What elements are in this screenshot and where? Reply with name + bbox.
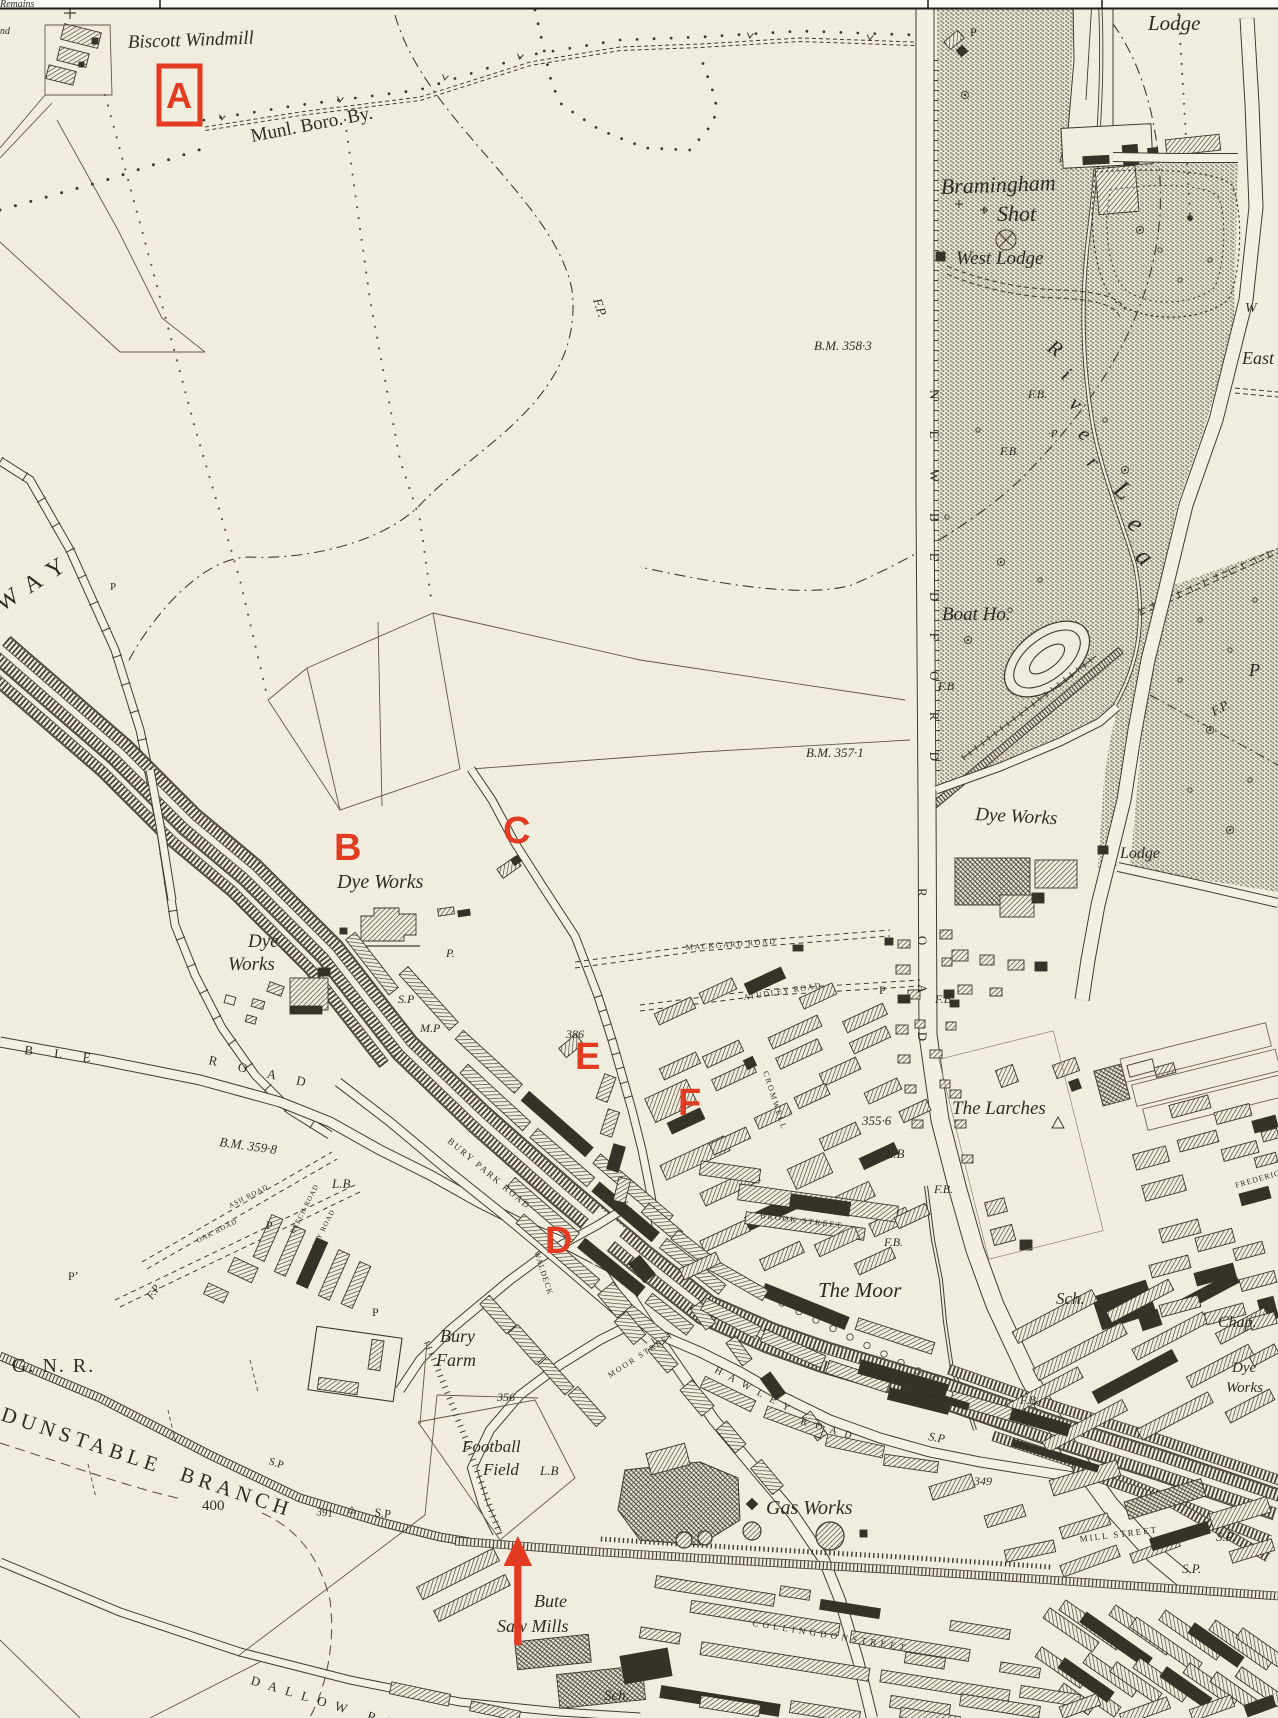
svg-text:A: A [166, 75, 192, 116]
svg-text:Field: Field [482, 1460, 519, 1479]
svg-text:Shot: Shot [997, 201, 1037, 226]
svg-text:F: F [678, 1082, 701, 1124]
svg-text:Dye Works: Dye Works [336, 871, 424, 893]
svg-text:E: E [575, 1036, 600, 1078]
svg-text:Biscott Windmill: Biscott Windmill [127, 28, 254, 53]
svg-text:S.P: S.P [398, 992, 415, 1006]
svg-text:D: D [545, 1220, 572, 1262]
svg-text:Dye Works: Dye Works [974, 804, 1058, 829]
svg-text:B.M. 357·1: B.M. 357·1 [806, 745, 864, 760]
svg-text:P: P [970, 25, 977, 39]
svg-text:Works: Works [228, 954, 275, 975]
svg-text:B.M. 358·3: B.M. 358·3 [814, 338, 872, 353]
svg-text:Saw Mills: Saw Mills [497, 1616, 569, 1636]
svg-text:L.B: L.B [331, 1176, 350, 1191]
svg-text:356: 356 [496, 1390, 515, 1404]
svg-text:Boat Ho.: Boat Ho. [942, 604, 1011, 625]
svg-text:N E W B E D F O R D: N E W B E D F O R D [927, 390, 942, 775]
svg-text:S.P.: S.P. [1182, 1561, 1201, 1576]
svg-text:F.B.: F.B. [1027, 387, 1047, 401]
svg-text:F.B.: F.B. [1019, 1393, 1039, 1407]
svg-text:Bramingham: Bramingham [940, 170, 1056, 199]
svg-text:S.P: S.P [374, 1505, 392, 1521]
svg-text:B: B [334, 827, 361, 869]
svg-text:Gas Works: Gas Works [766, 1497, 853, 1519]
svg-text:F.B.: F.B. [933, 1182, 953, 1196]
svg-text:349: 349 [973, 1474, 992, 1488]
svg-text:P: P [266, 1218, 273, 1232]
svg-text:△: △ [348, 1504, 356, 1515]
svg-text:P: P [879, 983, 886, 997]
svg-text:Football: Football [461, 1437, 521, 1456]
svg-text:Remains: Remains [0, 0, 35, 10]
svg-text:F.B.: F.B. [934, 992, 954, 1006]
svg-text:F.B.: F.B. [999, 444, 1019, 458]
svg-text:West Lodge: West Lodge [956, 248, 1043, 269]
svg-text:L.B: L.B [539, 1463, 558, 1478]
svg-text:P: P [1248, 660, 1260, 680]
svg-text:355·6: 355·6 [861, 1113, 892, 1128]
svg-text:Works: Works [1226, 1380, 1263, 1396]
svg-text:Pʼ: Pʼ [68, 1269, 79, 1283]
svg-text:F.B.: F.B. [883, 1235, 903, 1249]
svg-text:C: C [503, 810, 530, 852]
svg-text:391: 391 [316, 1506, 334, 1520]
svg-text:Dye: Dye [247, 931, 279, 952]
svg-text:Sch.: Sch. [1056, 1289, 1085, 1308]
svg-text:S.P: S.P [927, 1429, 946, 1446]
svg-text:R O A D: R O A D [915, 888, 930, 1059]
svg-text:·P: ·P [1048, 428, 1058, 440]
svg-text:L.B: L.B [885, 1146, 904, 1161]
svg-text:East: East [1241, 348, 1275, 368]
svg-text:Bute: Bute [534, 1591, 567, 1611]
svg-text:S.P.’: S.P.’ [1216, 1529, 1240, 1544]
svg-text:P: P [110, 581, 116, 593]
svg-text:Farm: Farm [435, 1350, 476, 1370]
svg-text:W: W [1245, 301, 1258, 316]
svg-text:Chap.: Chap. [1218, 1314, 1257, 1331]
svg-text:The Moor: The Moor [818, 1278, 902, 1302]
svg-text:G. N. R.: G. N. R. [12, 1355, 95, 1377]
svg-text:Lodge: Lodge [1119, 845, 1160, 862]
svg-text:Lodge: Lodge [1147, 11, 1201, 35]
svg-text:P.: P. [445, 946, 455, 960]
svg-text:M.P: M.P [419, 1021, 441, 1035]
svg-text:400: 400 [202, 1498, 225, 1514]
svg-text:Bury: Bury [440, 1326, 475, 1346]
svg-text:The Larches: The Larches [952, 1098, 1046, 1119]
svg-text:Sch.: Sch. [604, 1688, 629, 1704]
svg-text:P: P [372, 1305, 379, 1319]
svg-text:Dye: Dye [1231, 1360, 1256, 1376]
svg-text:nd: nd [0, 26, 11, 37]
